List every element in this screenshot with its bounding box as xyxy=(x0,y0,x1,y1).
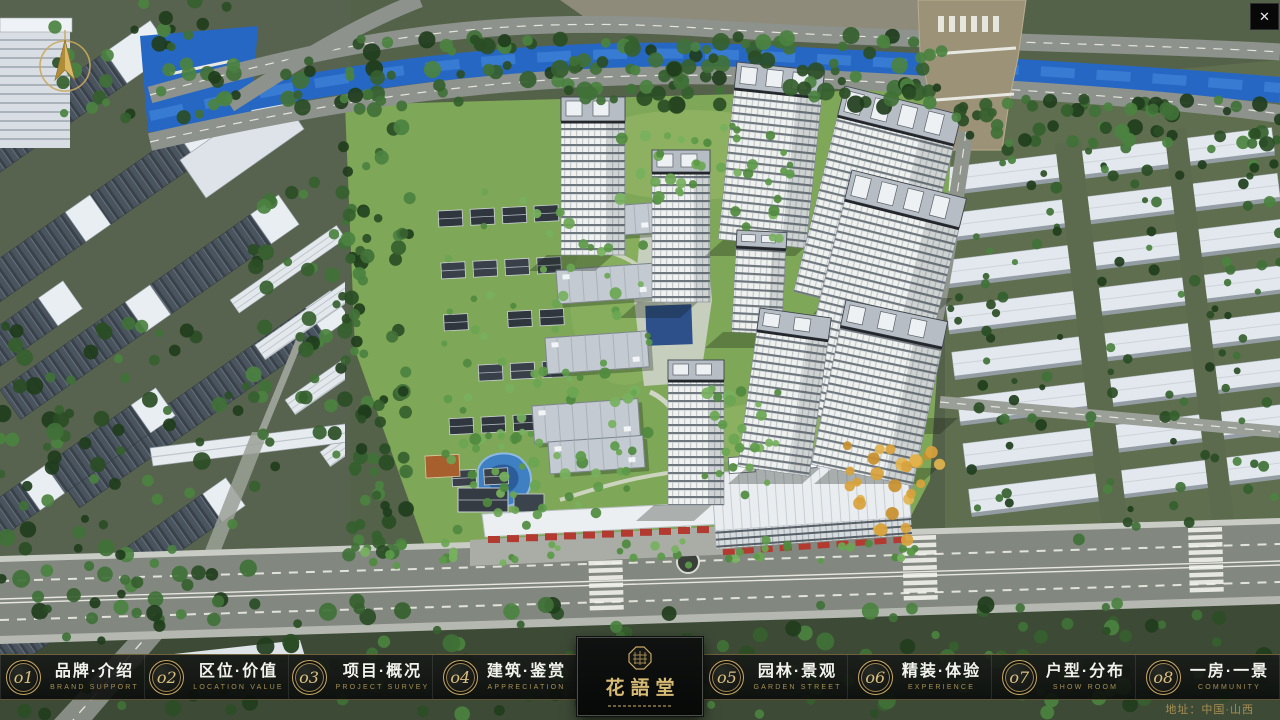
close-button[interactable]: ✕ xyxy=(1250,3,1279,30)
nav-badge-02: o2 xyxy=(149,660,184,695)
bottom-nav-bar: o1 品牌·介绍 BRAND SUPPORT o2 区位·价值 LOCATION… xyxy=(0,654,1280,700)
nav-label-en: BRAND SUPPORT xyxy=(50,684,139,691)
nav-label-cn: 区位·价值 xyxy=(199,664,278,680)
nav-label-en: GARDEN STREET xyxy=(753,684,841,691)
nav-badge-07: o7 xyxy=(1002,660,1037,695)
nav-label-cn: 建筑·鉴赏 xyxy=(487,664,566,680)
nav-item-garden[interactable]: o5 园林·景观 GARDEN STREET xyxy=(703,655,848,699)
nav-badge-08: o8 xyxy=(1146,660,1181,695)
nav-item-floorplan[interactable]: o7 户型·分布 SHOW ROOM xyxy=(992,655,1136,699)
nav-label-en: COMMUNITY xyxy=(1198,684,1261,691)
nav-label-cn: 精装·体验 xyxy=(902,664,981,680)
logo-subtitle-line xyxy=(608,705,672,707)
nav-badge-04: o4 xyxy=(443,660,478,695)
masterplan-render[interactable] xyxy=(0,0,1280,720)
nav-label-en: EXPERIENCE xyxy=(908,684,975,691)
compass-icon[interactable] xyxy=(34,28,96,98)
seal-emblem-icon xyxy=(628,646,652,670)
project-address: 地址：中国·山西 xyxy=(1165,701,1254,717)
nav-label-cn: 项目·概况 xyxy=(343,664,422,680)
nav-label-en: APPRECIATION xyxy=(487,684,565,691)
close-icon: ✕ xyxy=(1259,9,1270,25)
nav-label-en: PROJECT SURVEY xyxy=(336,684,430,691)
nav-badge-05: o5 xyxy=(709,660,744,695)
nav-label-cn: 园林·景观 xyxy=(758,664,837,680)
nav-item-brand[interactable]: o1 品牌·介绍 BRAND SUPPORT xyxy=(0,655,145,699)
project-logo[interactable]: 花語堂 xyxy=(577,637,703,716)
nav-badge-01: o1 xyxy=(6,660,41,695)
nav-group-left: o1 品牌·介绍 BRAND SUPPORT o2 区位·价值 LOCATION… xyxy=(0,655,577,699)
nav-label-cn: 品牌·介绍 xyxy=(55,664,134,680)
nav-group-right: o5 园林·景观 GARDEN STREET o6 精装·体验 EXPERIEN… xyxy=(703,655,1280,699)
nav-item-architecture[interactable]: o4 建筑·鉴赏 APPRECIATION xyxy=(433,655,577,699)
nav-badge-03: o3 xyxy=(292,660,327,695)
nav-label-cn: 户型·分布 xyxy=(1046,664,1125,680)
nav-item-project[interactable]: o3 项目·概况 PROJECT SURVEY xyxy=(289,655,433,699)
project-name: 花語堂 xyxy=(605,673,680,700)
nav-item-location[interactable]: o2 区位·价值 LOCATION VALUE xyxy=(145,655,289,699)
nav-item-views[interactable]: o8 一房·一景 COMMUNITY xyxy=(1136,655,1280,699)
nav-label-en: LOCATION VALUE xyxy=(193,684,283,691)
nav-label-cn: 一房·一景 xyxy=(1190,664,1269,680)
nav-badge-06: o6 xyxy=(858,660,893,695)
sales-presentation-window: ✕ o1 品牌·介绍 BRAND SUPPORT o2 区位·价值 LOCATI… xyxy=(0,0,1280,720)
nav-label-en: SHOW ROOM xyxy=(1053,684,1118,691)
nav-item-interior[interactable]: o6 精装·体验 EXPERIENCE xyxy=(848,655,992,699)
